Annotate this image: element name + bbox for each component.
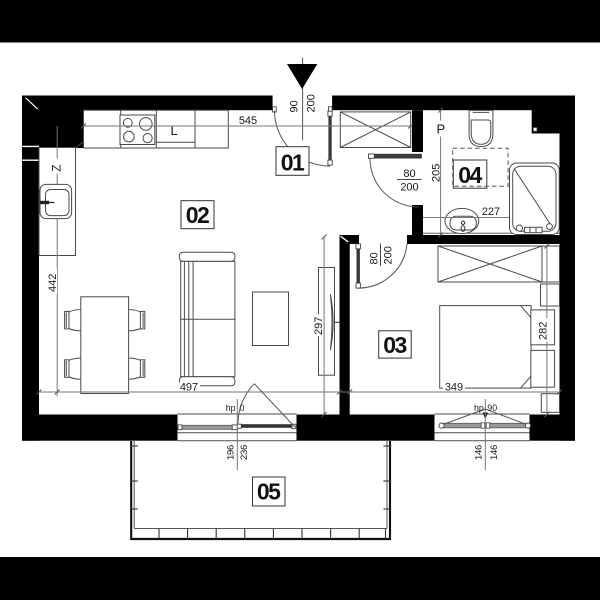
svg-text:04: 04 xyxy=(458,162,482,188)
svg-text:497: 497 xyxy=(180,382,198,394)
svg-text:196: 196 xyxy=(226,445,237,460)
svg-text:05: 05 xyxy=(257,479,281,505)
svg-text:03: 03 xyxy=(383,332,406,358)
svg-text:200: 200 xyxy=(306,94,318,112)
svg-text:297: 297 xyxy=(313,317,325,335)
svg-text:L: L xyxy=(171,123,178,138)
svg-text:hp: hp xyxy=(474,403,484,413)
svg-text:02: 02 xyxy=(186,202,209,228)
svg-text:282: 282 xyxy=(538,322,550,340)
svg-text:90: 90 xyxy=(289,100,301,112)
svg-text:hp: hp xyxy=(226,403,236,413)
svg-text:200: 200 xyxy=(400,182,418,194)
svg-text:227: 227 xyxy=(482,206,500,218)
svg-text:146: 146 xyxy=(474,445,485,460)
svg-text:146: 146 xyxy=(489,445,500,460)
svg-text:0: 0 xyxy=(240,403,245,413)
svg-text:90: 90 xyxy=(487,403,497,413)
svg-text:01: 01 xyxy=(281,150,305,176)
svg-text:442: 442 xyxy=(47,274,59,292)
svg-text:80: 80 xyxy=(403,168,415,180)
svg-text:200: 200 xyxy=(383,246,395,264)
svg-text:205: 205 xyxy=(431,164,443,182)
svg-text:349: 349 xyxy=(445,382,463,394)
svg-text:545: 545 xyxy=(239,115,257,127)
svg-text:80: 80 xyxy=(369,252,381,264)
svg-text:Z: Z xyxy=(50,164,64,171)
svg-text:P: P xyxy=(437,122,446,137)
svg-text:236: 236 xyxy=(239,445,250,460)
